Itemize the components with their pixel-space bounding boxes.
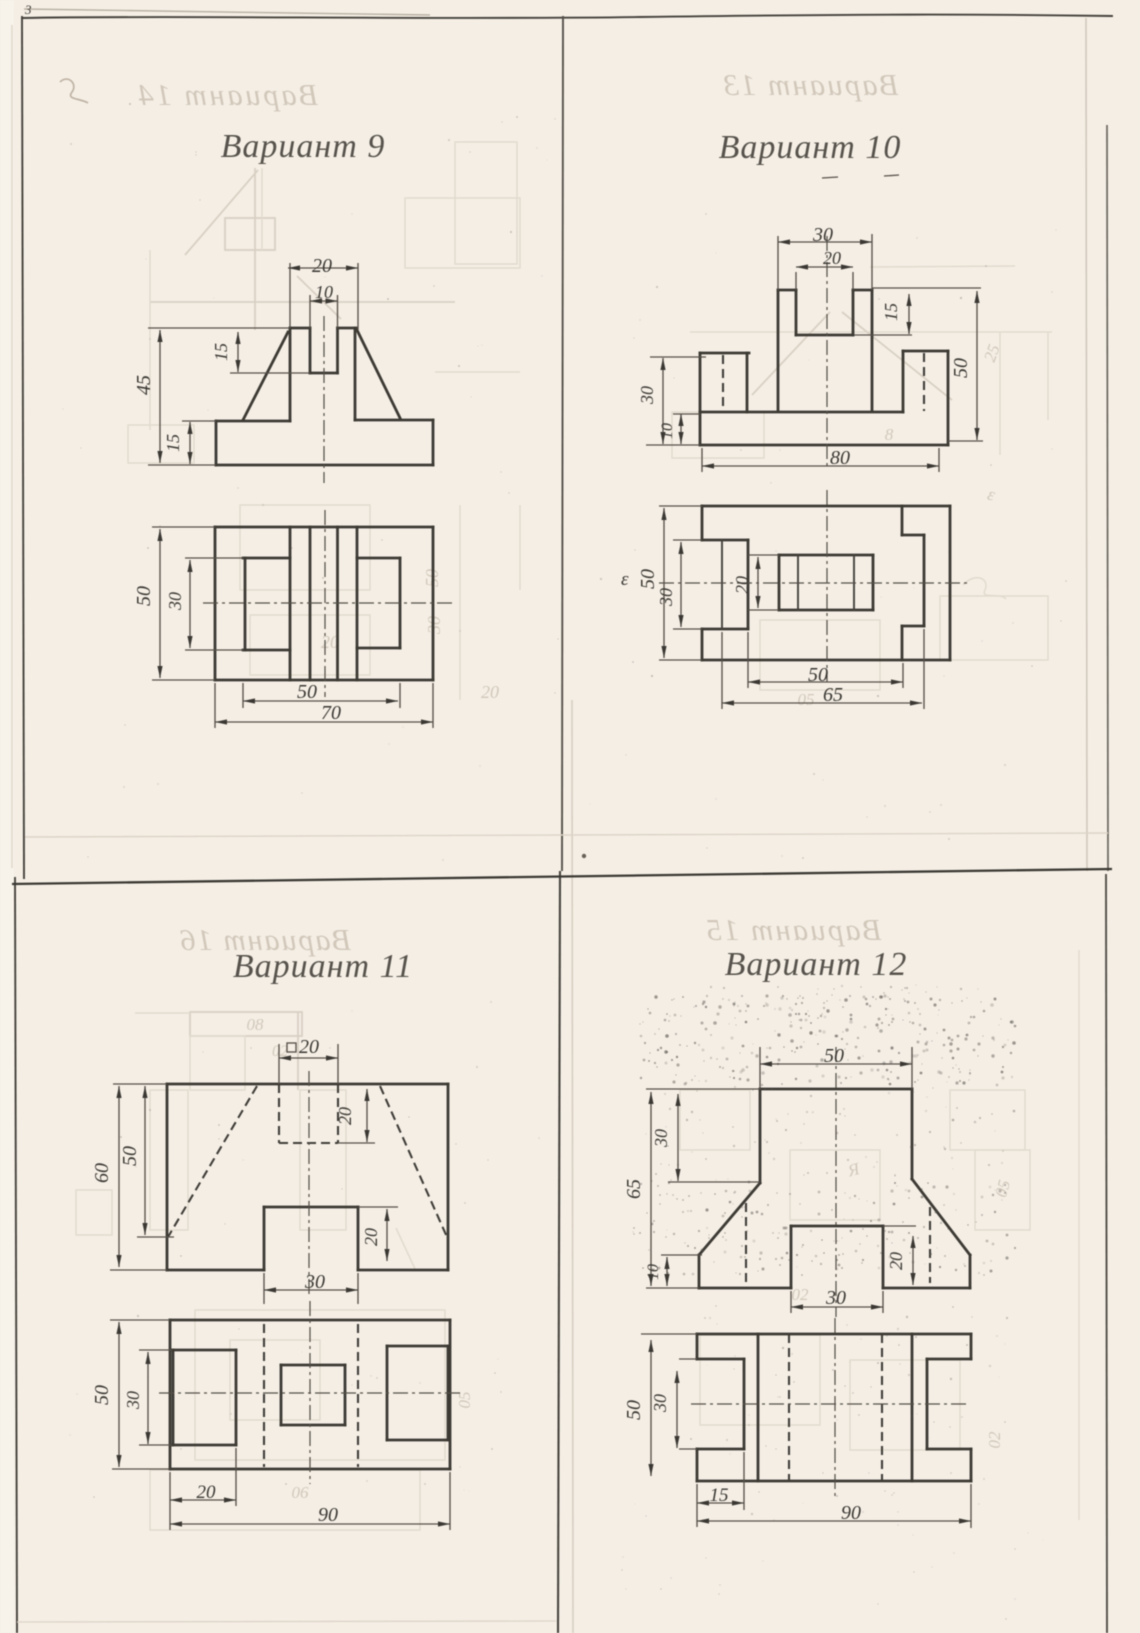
svg-text:3: 3 <box>24 2 32 17</box>
svg-text:20: 20 <box>361 1228 381 1246</box>
svg-text:50: 50 <box>623 1400 645 1420</box>
svg-text:20: 20 <box>481 682 499 702</box>
svg-text:Вариант 14: Вариант 14 <box>136 77 318 112</box>
svg-text:15: 15 <box>710 1485 729 1506</box>
svg-text:30: 30 <box>812 224 833 246</box>
svg-text:50: 50 <box>91 1385 113 1405</box>
svg-text:50: 50 <box>133 586 155 606</box>
svg-text:30: 30 <box>165 592 185 611</box>
svg-text:ε: ε <box>621 569 629 590</box>
svg-text:30: 30 <box>304 1271 325 1293</box>
svg-text:30: 30 <box>651 1129 671 1148</box>
svg-text:20: 20 <box>299 1036 319 1058</box>
svg-text:20: 20 <box>197 1482 217 1503</box>
svg-text:Вариант 12: Вариант 12 <box>725 946 908 983</box>
svg-text:50: 50 <box>808 664 828 686</box>
svg-text:30: 30 <box>650 1394 670 1413</box>
svg-text:02: 02 <box>985 1431 1004 1449</box>
svg-text:50: 50 <box>119 1146 141 1166</box>
svg-text:Вариант 11: Вариант 11 <box>233 948 413 985</box>
svg-text:Вариант 13: Вариант 13 <box>721 67 898 102</box>
svg-text:20: 20 <box>312 255 332 277</box>
svg-text:20: 20 <box>335 1107 355 1125</box>
svg-text:Вариант 9: Вариант 9 <box>221 128 386 165</box>
svg-text:20: 20 <box>732 576 752 594</box>
svg-text:30: 30 <box>123 1391 143 1410</box>
svg-text:15: 15 <box>881 303 901 321</box>
svg-text:15: 15 <box>211 343 231 361</box>
svg-text:20: 20 <box>823 248 841 268</box>
svg-text:50: 50 <box>637 569 659 589</box>
svg-text:90: 90 <box>318 1504 338 1526</box>
svg-text:10: 10 <box>315 282 333 302</box>
svg-text:20: 20 <box>886 1252 906 1270</box>
svg-text:30: 30 <box>825 1287 846 1309</box>
svg-text:70: 70 <box>321 702 341 724</box>
svg-text:Вариант 15: Вариант 15 <box>704 912 881 947</box>
svg-text:05: 05 <box>455 1392 474 1409</box>
svg-text:60: 60 <box>91 1163 113 1183</box>
svg-text:50: 50 <box>297 681 317 703</box>
svg-text:Вариант 10: Вариант 10 <box>719 129 902 166</box>
svg-text:10: 10 <box>645 1264 662 1280</box>
svg-text:45: 45 <box>133 375 155 395</box>
svg-text:80: 80 <box>830 447 850 469</box>
svg-text:50: 50 <box>950 358 972 378</box>
svg-text:06: 06 <box>292 1483 310 1502</box>
svg-text:15: 15 <box>163 434 183 452</box>
svg-text:05: 05 <box>798 690 815 709</box>
svg-text:30: 30 <box>656 588 676 607</box>
svg-text:65: 65 <box>823 684 843 706</box>
svg-text:08: 08 <box>247 1015 265 1034</box>
svg-text:02: 02 <box>792 1285 810 1304</box>
svg-text:65: 65 <box>623 1179 645 1199</box>
svg-text:10: 10 <box>659 423 676 439</box>
svg-text:90: 90 <box>841 1502 861 1524</box>
svg-text:30: 30 <box>637 386 657 405</box>
svg-text:8: 8 <box>885 425 894 444</box>
